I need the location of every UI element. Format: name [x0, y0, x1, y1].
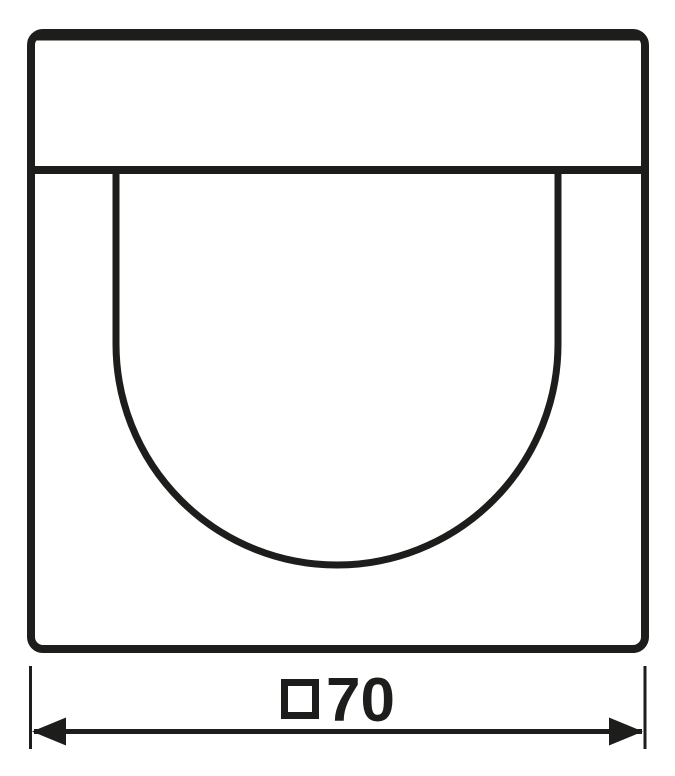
technical-drawing: 70	[0, 0, 675, 776]
detector-arch-outline	[116, 170, 558, 565]
dimension-value-label: 70	[326, 666, 395, 735]
cover-frame-outline	[31, 33, 645, 649]
square-symbol-icon	[285, 683, 316, 716]
dimension-arrowhead-left-icon	[32, 718, 66, 746]
dimension-drawing-canvas: 70	[0, 0, 675, 776]
dimension-arrowhead-right-icon	[609, 718, 643, 746]
